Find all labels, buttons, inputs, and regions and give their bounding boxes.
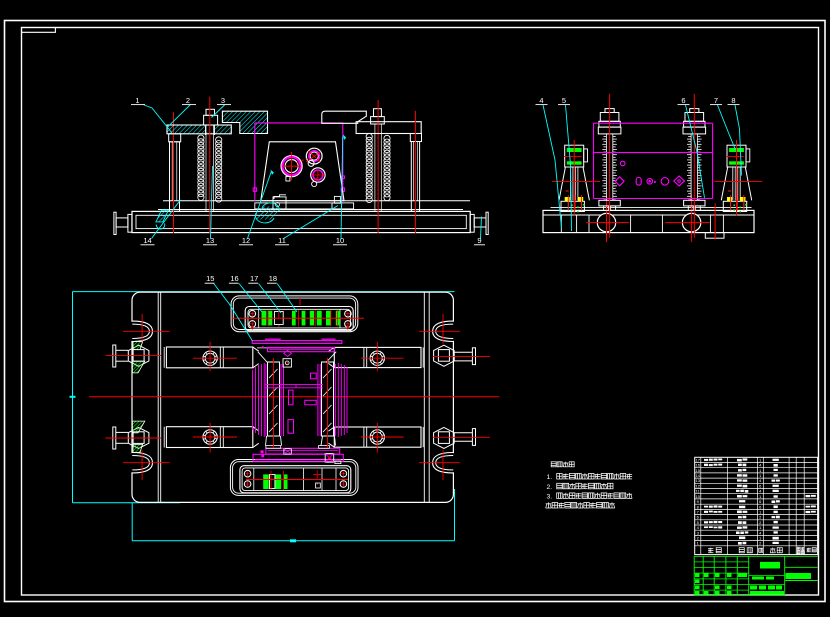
svg-text:3.: 3. [547, 494, 553, 501]
svg-text:6: 6 [681, 96, 685, 105]
svg-text:5: 5 [562, 96, 566, 105]
svg-text:7: 7 [714, 96, 718, 105]
svg-text:9: 9 [477, 236, 481, 245]
svg-text:4: 4 [539, 96, 543, 105]
svg-text:1.: 1. [547, 474, 553, 481]
svg-text:10: 10 [336, 236, 344, 245]
svg-text:16: 16 [230, 274, 238, 283]
svg-text:13: 13 [206, 236, 214, 245]
svg-text:2.: 2. [547, 484, 553, 491]
svg-text:3: 3 [221, 96, 225, 105]
svg-text:15: 15 [206, 274, 214, 283]
svg-text:1: 1 [135, 96, 139, 105]
svg-text:2: 2 [186, 96, 190, 105]
svg-text:18: 18 [269, 274, 277, 283]
svg-text:8: 8 [731, 96, 735, 105]
svg-text:12: 12 [242, 236, 250, 245]
svg-text:17: 17 [250, 274, 258, 283]
svg-text:11: 11 [278, 236, 286, 245]
svg-text:14: 14 [143, 236, 151, 245]
